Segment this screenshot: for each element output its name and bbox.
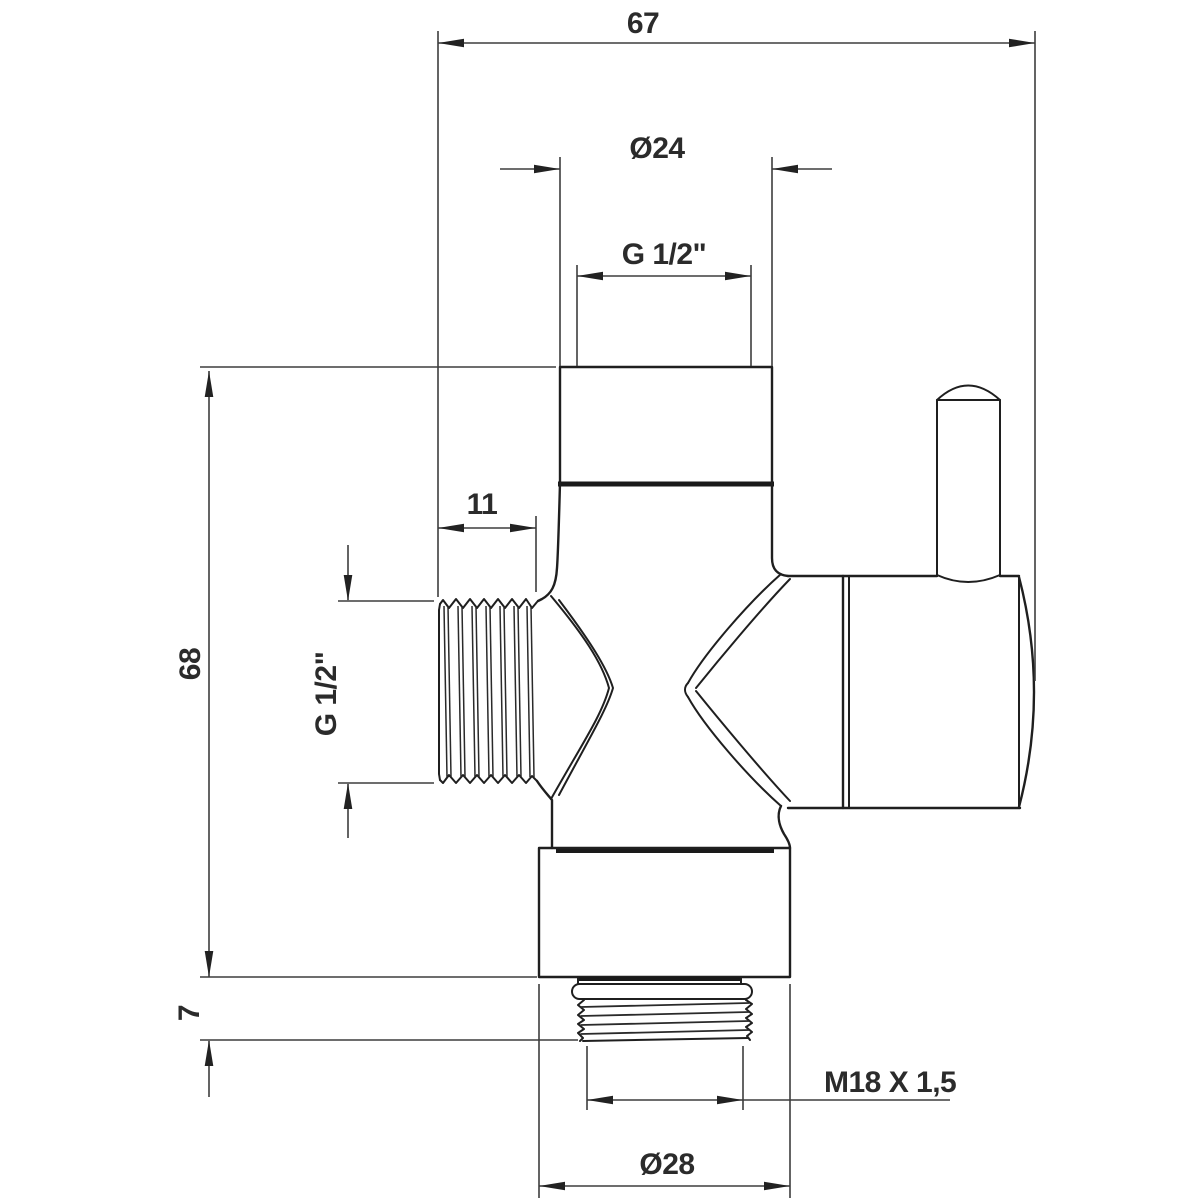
dimension-top-port-thread: G 1/2" (577, 238, 751, 366)
arrowhead (344, 575, 353, 601)
bottom-thread-collar (572, 984, 752, 999)
arrowhead (539, 1182, 565, 1191)
arrowhead (717, 1096, 743, 1105)
arrowhead (725, 272, 751, 281)
bottom-thread-ridge (581, 1003, 749, 1007)
lever-pin-dome (937, 386, 1000, 401)
dim-overall-width-label: 67 (627, 7, 659, 40)
dimension-bottom-nut-diameter: Ø28 (539, 984, 790, 1198)
arrowhead (438, 39, 464, 48)
body-lower-left-edge (537, 781, 552, 848)
body-lower-right-edge (779, 806, 790, 848)
dimension-overall-height: 68 (174, 367, 556, 977)
thread-flank-line (490, 606, 493, 777)
top-port-rect (560, 367, 772, 483)
dim-top-port-diameter-label: Ø24 (629, 132, 685, 165)
arrowhead (534, 165, 560, 174)
arrowhead (772, 165, 798, 174)
valve-outline (439, 367, 1034, 1041)
dimension-bottom-thread-spec: M18 X 1,5 (587, 1046, 956, 1110)
arrowhead (587, 1096, 613, 1105)
thread-flank-line (486, 606, 489, 777)
body-left-edge (538, 483, 560, 601)
lever-pin (937, 386, 1000, 583)
dim-overall-height-label: 68 (174, 648, 207, 680)
bottom-nut-rect (539, 848, 790, 977)
dim-bottom-thread-spec-label: M18 X 1,5 (824, 1066, 956, 1099)
right-cone-lower-inner (696, 691, 790, 801)
bottom-nut (539, 848, 790, 984)
arrowhead (510, 524, 536, 533)
right-cone-lower-outer (688, 697, 781, 806)
dim-top-port-thread-label: G 1/2" (622, 238, 707, 271)
dimension-side-thread-length: 11 (438, 488, 536, 592)
body-right-edge (772, 483, 788, 576)
thread-flank-line (462, 606, 465, 777)
bottom-thread-ridge (581, 1012, 749, 1016)
arrowhead (205, 371, 214, 397)
thread-flank-line (504, 606, 507, 777)
dimension-side-port-thread: G 1/2" (310, 545, 434, 838)
bottom-thread (572, 984, 752, 1041)
arrowhead (764, 1182, 790, 1191)
arrowhead (577, 272, 603, 281)
dim-side-port-thread-label: G 1/2" (310, 652, 343, 737)
bottom-thread-end-edge (583, 1038, 748, 1041)
lever-pin-base-arc (937, 575, 1000, 582)
bottom-thread-ridge (581, 1021, 749, 1025)
right-cone-upper-outer (688, 574, 781, 683)
left-cone (551, 596, 613, 799)
dimension-overall-width: 67 (438, 7, 1035, 681)
technical-drawing-canvas: 67 Ø24 G 1/2" 11 68 (0, 0, 1200, 1200)
dim-side-thread-length-label: 11 (467, 488, 498, 521)
side-thread (439, 599, 537, 783)
thread-flank-line (514, 606, 517, 777)
bottom-thread-ridge (581, 1030, 749, 1034)
arrowhead (205, 951, 214, 977)
arrowhead (205, 1040, 214, 1066)
right-port (788, 576, 1034, 808)
side-thread-end-edge (439, 604, 440, 780)
thread-flank-line (531, 606, 534, 777)
thread-flank-line (444, 606, 447, 777)
thread-flank-line (527, 606, 530, 777)
thread-flank-line (500, 606, 503, 777)
top-port (558, 367, 774, 484)
arrowhead (1009, 39, 1035, 48)
valve-diagram: 67 Ø24 G 1/2" 11 68 (0, 0, 1200, 1200)
thread-flank-line (458, 606, 461, 777)
arrowhead (344, 783, 353, 809)
right-cone-apex (685, 683, 688, 697)
dimension-bottom-collar-height: 7 (173, 1005, 578, 1097)
thread-flank-line (448, 606, 451, 777)
bottom-thread-right-crests (746, 1000, 752, 1040)
dim-bottom-nut-diameter-label: Ø28 (639, 1148, 694, 1181)
right-cone-upper-inner (696, 579, 790, 688)
left-cone-outer (551, 596, 609, 799)
thread-flank-line (472, 606, 475, 777)
right-port-cap-arc (1019, 577, 1034, 807)
right-cone (685, 574, 790, 806)
left-cone-inner (559, 600, 613, 795)
thread-flank-line (476, 606, 479, 777)
side-thread-flanks (444, 606, 534, 777)
side-thread-top-crests (440, 599, 537, 608)
arrowhead (438, 524, 464, 533)
thread-flank-line (518, 606, 521, 777)
dim-bottom-collar-height-label: 7 (173, 1005, 206, 1021)
